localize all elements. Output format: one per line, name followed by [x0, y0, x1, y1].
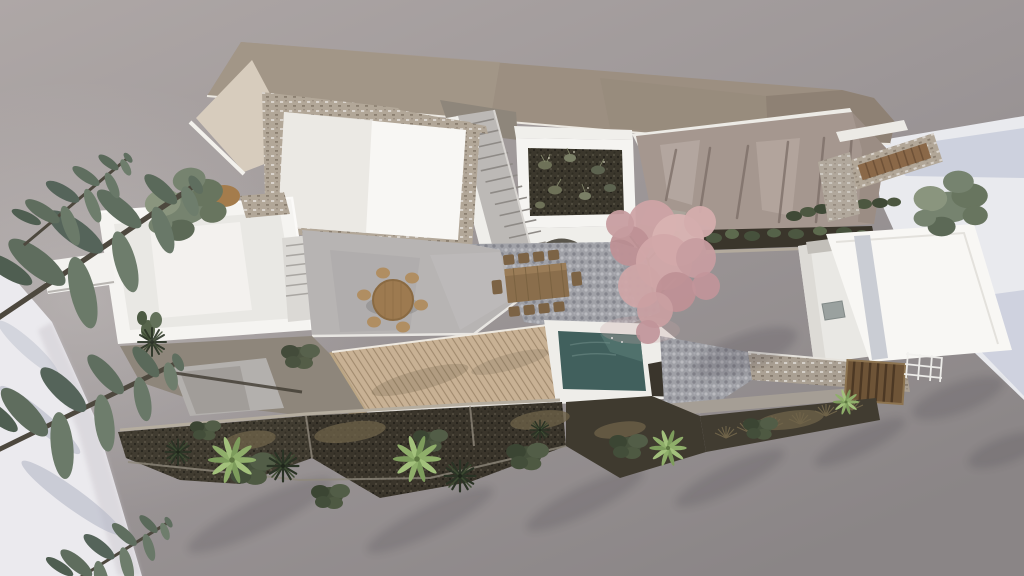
skylight [822, 301, 845, 320]
cactus [150, 312, 162, 328]
villa-aerial-render [0, 0, 1024, 576]
cactus [137, 311, 147, 325]
render-canvas [0, 0, 1024, 576]
